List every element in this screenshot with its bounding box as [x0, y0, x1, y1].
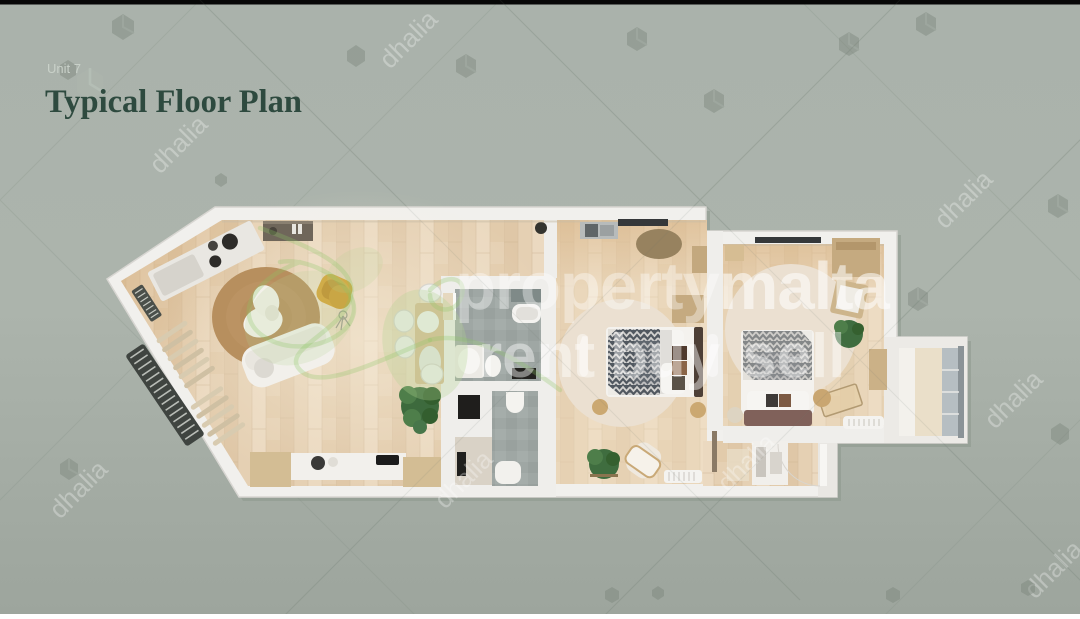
svg-text:propertymalta: propertymalta: [455, 249, 891, 324]
svg-text:sell: sell: [742, 322, 845, 391]
svg-text:buy: buy: [610, 322, 721, 391]
svg-text:Unit 7: Unit 7: [47, 61, 81, 76]
svg-text:Typical Floor Plan: Typical Floor Plan: [45, 84, 302, 120]
